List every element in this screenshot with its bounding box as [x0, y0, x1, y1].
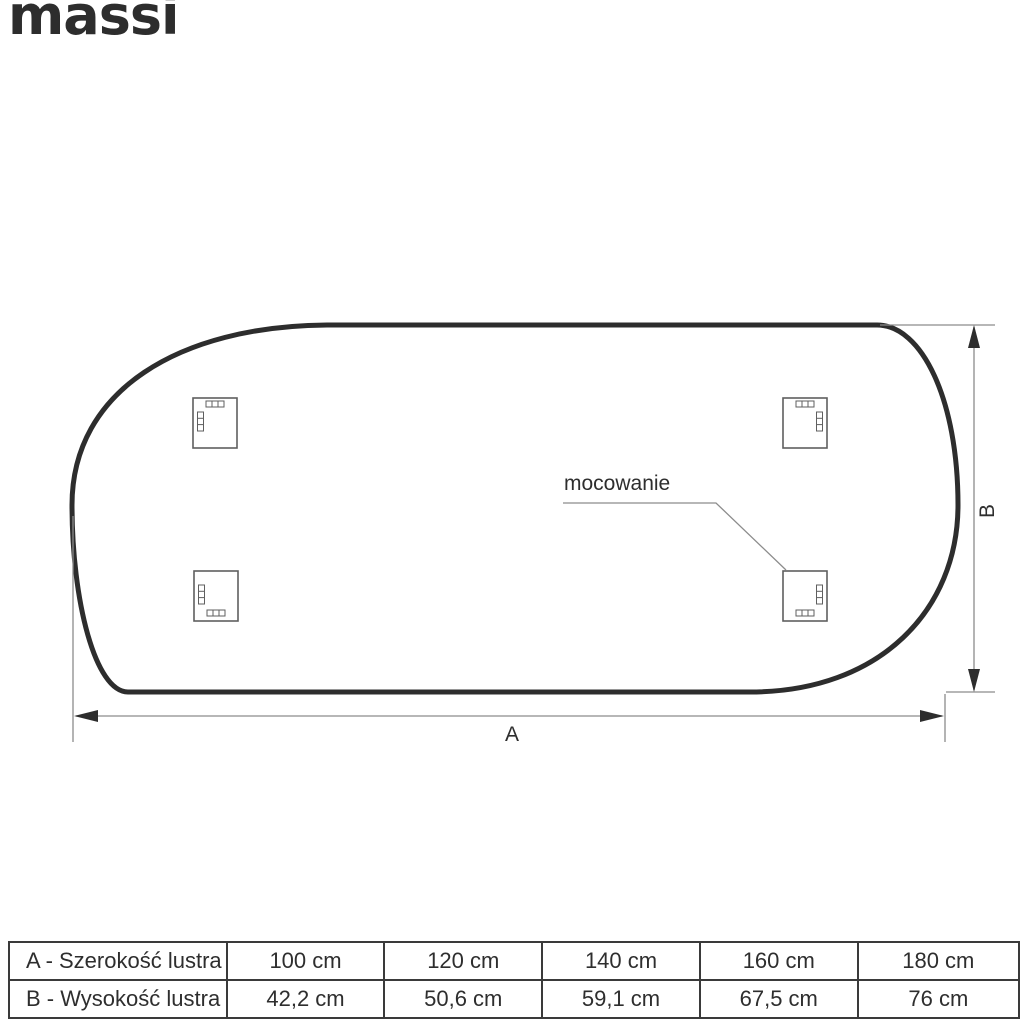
mounting-leader-line [563, 503, 786, 570]
table-row-height: B - Wysokość lustra 42,2 cm 50,6 cm 59,1… [9, 980, 1019, 1018]
width-value: 140 cm [542, 942, 700, 980]
table-row-width: A - Szerokość lustra 100 cm 120 cm 140 c… [9, 942, 1019, 980]
height-dimension-label: B [976, 504, 999, 518]
width-dimension [73, 516, 945, 742]
height-value: 76 cm [858, 980, 1019, 1018]
width-value: 100 cm [227, 942, 385, 980]
mounting-label: mocowanie [564, 472, 670, 495]
page: massi [0, 0, 1020, 1019]
width-value: 120 cm [384, 942, 542, 980]
width-value: 180 cm [858, 942, 1019, 980]
arrow-right-icon [920, 710, 944, 722]
height-value: 67,5 cm [700, 980, 858, 1018]
row-header-height: B - Wysokość lustra [9, 980, 227, 1018]
height-value: 59,1 cm [542, 980, 700, 1018]
mounting-bracket-bottom-left [194, 571, 238, 621]
arrow-left-icon [74, 710, 98, 722]
mounting-bracket-bottom-right [783, 571, 827, 621]
mirror-diagram: mocowanie A B [0, 0, 1020, 780]
mounting-bracket-top-right [783, 398, 827, 448]
row-header-width: A - Szerokość lustra [9, 942, 227, 980]
dimensions-table: A - Szerokość lustra 100 cm 120 cm 140 c… [8, 941, 1020, 1019]
width-value: 160 cm [700, 942, 858, 980]
arrow-up-icon [968, 325, 980, 348]
height-value: 50,6 cm [384, 980, 542, 1018]
mirror-outline [72, 325, 958, 692]
arrow-down-icon [968, 669, 980, 692]
height-value: 42,2 cm [227, 980, 385, 1018]
width-dimension-label: A [505, 723, 519, 746]
mounting-bracket-top-left [193, 398, 237, 448]
